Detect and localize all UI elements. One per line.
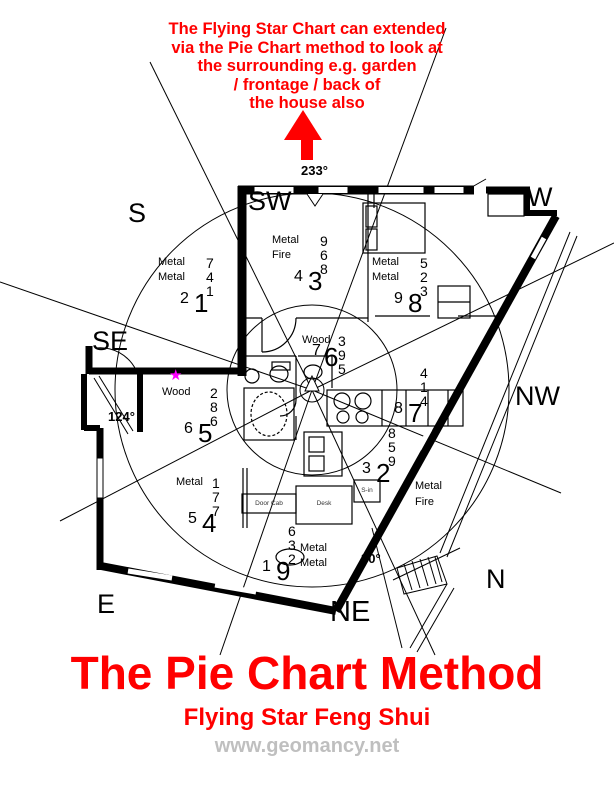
annotation-line: The Flying Star Chart can extended: [0, 20, 614, 39]
cabinet-label: Door Cab: [244, 500, 294, 507]
sector-star: 4: [420, 366, 428, 380]
up-arrow-stem: [301, 138, 313, 160]
shoe-cabinet-label: S-in: [355, 487, 379, 494]
sector-star: 6: [320, 248, 328, 262]
sector-element: Metal: [300, 557, 327, 569]
sector-element: Wood: [162, 386, 191, 398]
sector-element: Metal: [176, 476, 203, 488]
sector-star: 2: [210, 386, 218, 400]
sector-southwest: Metal Fire 9 6 8 4 3: [272, 234, 352, 316]
compass-northwest: NW: [515, 381, 560, 412]
gate-angle-label: 30°: [361, 551, 381, 566]
sector-star: 9: [338, 348, 346, 362]
sector-star: 7: [206, 256, 214, 270]
page-subtitle: Flying Star Feng Shui: [0, 704, 614, 732]
compass-southeast: SE: [92, 326, 128, 357]
compass-northeast: NE: [330, 596, 370, 629]
sector-star: 3: [288, 538, 296, 552]
sector-west: Metal Metal 5 2 3 9 8: [372, 256, 452, 338]
sector-north: Metal Fire 8 5 9 3 2: [340, 426, 420, 508]
sector-element: Fire: [415, 496, 434, 508]
sector-star: 1: [212, 476, 220, 490]
facing-marker: [307, 194, 323, 206]
sector-star: 8: [210, 400, 218, 414]
compass-west: W: [527, 182, 552, 213]
sector-star: 9: [394, 290, 403, 308]
sector-base-number: 1: [194, 290, 208, 316]
sector-star: 5: [338, 362, 346, 376]
compass-south: S: [128, 198, 146, 229]
sector-center: Wood 3 9 5 7 6: [302, 334, 382, 416]
page-title: The Pie Chart Method: [0, 646, 614, 700]
sector-element: Metal: [372, 271, 399, 283]
facing-angle-label: 233°: [301, 163, 328, 178]
sector-star: 9: [320, 234, 328, 248]
sector-base-number: 7: [408, 400, 422, 426]
sector-star: 5: [188, 510, 197, 528]
sector-star: 6: [184, 420, 193, 438]
sector-base-number: 6: [324, 344, 338, 370]
sector-element: Metal: [300, 542, 327, 554]
sector-star: 5: [420, 256, 428, 270]
up-arrow-icon: [284, 110, 322, 140]
sector-element: Fire: [272, 249, 291, 261]
star-marker-icon: ★: [169, 368, 182, 383]
compass-east: E: [97, 589, 115, 620]
sector-star: 7: [212, 490, 220, 504]
sector-element: Metal: [272, 234, 299, 246]
sector-base-number: 9: [276, 558, 290, 584]
sector-star: 2: [420, 270, 428, 284]
annotation-line: via the Pie Chart method to look at: [0, 39, 614, 58]
sector-base-number: 8: [408, 290, 422, 316]
website-watermark: www.geomancy.net: [0, 735, 614, 758]
desk-label: Desk: [298, 500, 350, 507]
sector-star: 4: [294, 268, 303, 286]
sector-star: 1: [420, 380, 428, 394]
sector-star: 3: [362, 460, 371, 478]
sector-south: Metal Metal 7 4 1 2 1: [158, 256, 238, 338]
sector-northeast: Metal Metal 6 3 2 1 9: [240, 524, 320, 606]
sector-star: 6: [288, 524, 296, 538]
sector-star: 4: [206, 270, 214, 284]
sector-element: Metal: [158, 271, 185, 283]
annotation-line: the surrounding e.g. garden: [0, 57, 614, 76]
sector-base-number: 5: [198, 420, 212, 446]
sector-star: 1: [262, 558, 271, 576]
sector-star: 8: [388, 426, 396, 440]
page: The Flying Star Chart can extended via t…: [0, 0, 614, 804]
compass-southwest: SW: [248, 186, 292, 217]
sector-base-number: 2: [376, 460, 390, 486]
sector-element: Metal: [415, 480, 442, 492]
sector-base-number: 3: [308, 268, 322, 294]
sector-star: 5: [388, 440, 396, 454]
top-annotation: The Flying Star Chart can extended via t…: [0, 20, 614, 113]
sector-star: 3: [338, 334, 346, 348]
compass-north: N: [486, 564, 506, 595]
sector-element: Metal: [158, 256, 185, 268]
annotation-line: / frontage / back of: [0, 76, 614, 95]
entrance-angle-label: 124°: [108, 409, 135, 424]
sector-star: 2: [180, 290, 189, 308]
sector-southeast: Wood 2 8 6 6 5: [162, 386, 242, 468]
sector-element: Metal: [372, 256, 399, 268]
sector-star: 8: [394, 400, 403, 418]
sector-star: 7: [312, 342, 321, 360]
sector-base-number: 4: [202, 510, 216, 536]
